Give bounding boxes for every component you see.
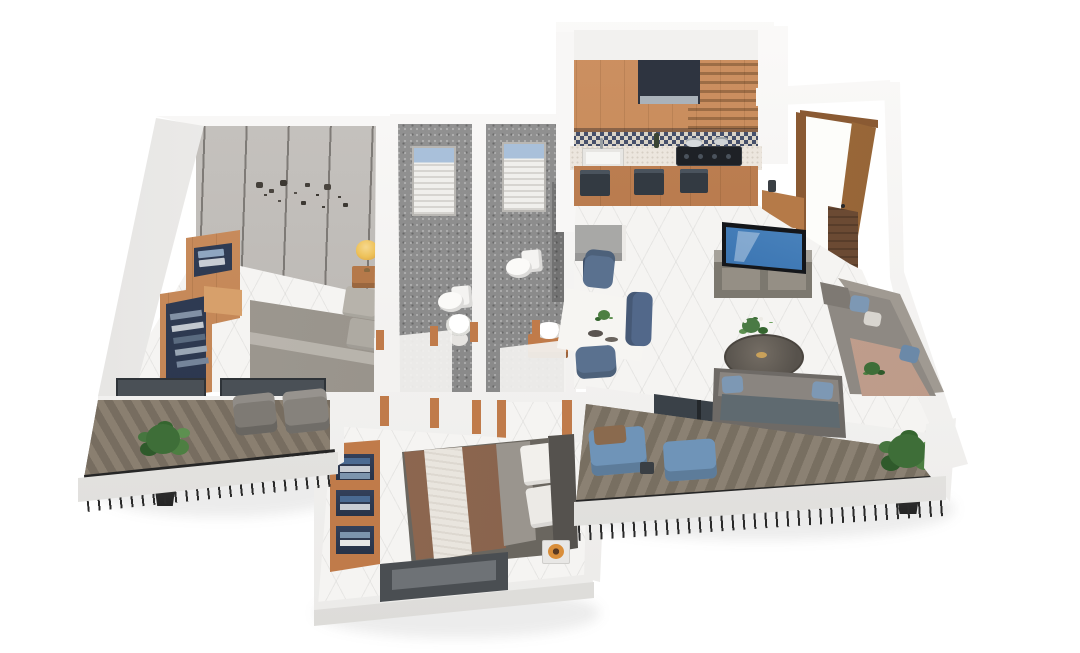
built-in-oven: [634, 169, 664, 195]
gas-hob: [676, 146, 742, 166]
bedroom2-left-wall: [0, 0, 1080, 653]
lounger-blue: [663, 438, 718, 482]
dark-wood-panel: [0, 0, 1080, 653]
bedroom2-bottom-wall: [0, 0, 1080, 653]
bed2-frame: [0, 0, 1080, 653]
shelf-cubby: [336, 526, 374, 554]
bathrooms: [0, 0, 1080, 653]
master-bed-sheet-fold: [0, 0, 1080, 653]
toilet-bowl: [438, 292, 464, 312]
living-floor: [0, 0, 1080, 653]
bed2-white-throw: [0, 0, 1080, 653]
base-cabinets: [0, 0, 1080, 653]
tucked-chair: [583, 256, 611, 284]
wall-art: [256, 182, 263, 188]
bathroom-window-blinds: [412, 146, 456, 216]
ground-shadow: [565, 478, 955, 540]
master-bedroom-top-wall: [0, 0, 1080, 653]
mosaic-backsplash: [0, 0, 1080, 653]
bedroom2-window-inner: [0, 0, 1080, 653]
bathroom-window-blinds: [502, 142, 546, 212]
open-shelf-unit: [0, 0, 1080, 653]
pillow: [342, 285, 382, 320]
wood-post: [532, 320, 540, 340]
balcony-glass-door: [0, 0, 1080, 653]
table-plant: [598, 310, 610, 320]
bathroom-right-wall: [0, 0, 1080, 653]
kitchen-top-wall: [0, 0, 1080, 653]
cooking-pot: [686, 138, 702, 147]
television-screen: [0, 0, 1080, 653]
wardrobe-upper-interior: [0, 0, 1080, 653]
kitchen-sink: [582, 148, 624, 168]
door-post: [472, 400, 481, 434]
coffee-table: [724, 334, 804, 380]
kitchen-corner-column: [0, 0, 1080, 653]
wood-post: [430, 326, 438, 346]
screen-highlight: [0, 0, 1080, 653]
two-seat-sofa-frame: [0, 0, 1080, 653]
ground-shadow: [315, 588, 600, 638]
blue-towels: [340, 458, 370, 464]
shower-screen: [0, 0, 1080, 653]
balcony-armchair: [282, 388, 330, 434]
right-outer-wall: [0, 0, 1080, 653]
hood-steel-strip: [640, 96, 698, 104]
wood-post: [376, 330, 384, 350]
pillow-white: [525, 483, 567, 528]
dining-chair: [575, 345, 617, 380]
entry-door-leaf: [0, 0, 1080, 653]
living-balcony-wall: [0, 0, 1080, 653]
master-bedroom-floor: [0, 0, 1080, 653]
bedroom-bathroom-wall: [0, 0, 1080, 653]
wardrobe-hanging-unit: [0, 0, 1080, 653]
room-kitchen: [0, 0, 1080, 653]
bathroom-divider-wall: [0, 0, 1080, 653]
bedroom2-floor: [0, 0, 1080, 653]
room-entry: [0, 0, 1080, 653]
master-bed-blanket: [0, 0, 1080, 653]
bathroom-gray-block: [0, 0, 1080, 653]
bench-lamp: [768, 180, 776, 192]
gold-bowl: [756, 352, 767, 358]
range-hood: [0, 0, 1080, 653]
window-sill-band: [0, 0, 1080, 653]
dining-chair: [582, 249, 616, 290]
balcony-armchair: [232, 392, 278, 436]
floorplan-canvas: [0, 0, 1080, 653]
upper-cabinets: [0, 0, 1080, 653]
orange-bowl: [548, 544, 564, 559]
left-balcony-end-wall: [0, 0, 1080, 653]
door-lintel: [0, 0, 1080, 653]
table-lamp: [356, 240, 378, 260]
door-post: [562, 400, 572, 444]
shoe-bench: [0, 0, 1080, 653]
tan-chaise: [0, 0, 1080, 653]
cooking-pot: [714, 137, 728, 145]
door-post: [430, 398, 439, 428]
faucet: [600, 138, 603, 149]
countertop: [0, 0, 1080, 653]
television-frame: [0, 0, 1080, 653]
shelf-cubby: [336, 454, 374, 480]
wardrobe-hanging-interior: [0, 0, 1080, 653]
entry-top-wall: [0, 0, 1080, 653]
built-in-oven: [580, 170, 610, 196]
wardrobe-upper-unit: [0, 0, 1080, 653]
potted-plant: [888, 434, 926, 468]
pillow-blue: [721, 375, 743, 393]
hob-burner: [684, 154, 689, 159]
room-bedroom-2: [0, 0, 1080, 653]
cabinet-slats: [0, 0, 1080, 653]
door-post: [497, 400, 506, 442]
potted-plant: [146, 424, 180, 454]
lounger-blue: [588, 426, 648, 477]
bathroom-top-wall: [0, 0, 1080, 653]
dining-chair: [625, 292, 653, 347]
nightstand: [352, 266, 382, 288]
folded-clothes: [198, 249, 225, 259]
toilet: [521, 249, 543, 273]
shower-screen: [0, 0, 1080, 653]
coffee-table-plant: [742, 318, 760, 333]
side-table: [542, 540, 570, 564]
toilet: [451, 285, 473, 309]
bedroom2-door-opening: [0, 0, 1080, 653]
floor-plant-small: [864, 362, 880, 375]
kitchen-wall-band: [0, 0, 1080, 653]
under-cabinet-shadow: [0, 0, 1080, 653]
room-master-bedroom: [0, 0, 1080, 653]
plant-flowers: [750, 314, 754, 318]
bedroom-window: [220, 378, 326, 398]
bedroom2-right-wall: [0, 0, 1080, 653]
bedroom2-window-frame: [0, 0, 1080, 653]
bedroom2-slab: [0, 0, 1080, 653]
pillow-blue: [849, 295, 870, 313]
ground-shadow: [95, 462, 350, 517]
toilet-bowl: [506, 258, 532, 278]
washbasin: [446, 314, 472, 336]
bathroom-shadow-band: [0, 0, 1080, 653]
balcony-main: [0, 0, 1080, 653]
sectional-sofa-back: [0, 0, 1080, 653]
main-balcony-end-wall: [0, 0, 1080, 653]
bed2-headboard: [0, 0, 1080, 653]
door-handle: [841, 204, 845, 208]
left-balcony-slab: [0, 0, 1080, 653]
sofa-armrest: [0, 0, 1080, 653]
pillow-white: [520, 442, 561, 486]
bedroom-window: [116, 378, 206, 398]
table-dish: [588, 330, 603, 337]
panel-feature-wall: [0, 0, 1080, 653]
washbasin-oval: [534, 322, 564, 339]
bed2-duvet-brown: [0, 0, 1080, 653]
pillow-gray: [863, 311, 882, 328]
pillow: [346, 317, 388, 353]
refrigerator-unit: [575, 225, 626, 261]
kitchen-floor: [0, 0, 1080, 653]
sectional-sofa-seat: [0, 0, 1080, 653]
main-balcony-slab: [0, 0, 1080, 653]
pillow-blue: [811, 381, 834, 400]
wine-bottle: [654, 133, 659, 148]
pillow-blue: [898, 344, 920, 364]
door-opening: [0, 0, 1080, 653]
master-bedroom-left-wall: [0, 0, 1080, 653]
left-balcony-deck: [0, 0, 1080, 653]
two-seat-sofa-back: [0, 0, 1080, 653]
main-balcony-deck: [0, 0, 1080, 653]
balcony-side-table: [640, 462, 654, 474]
door-frame: [0, 0, 1080, 653]
glass-mullion: [0, 0, 1080, 653]
bedroom2-top-wall: [0, 0, 1080, 653]
lounger-cushion-brown: [593, 425, 626, 446]
vanity-wood: [528, 334, 568, 358]
dresser-top: [0, 0, 1080, 653]
master-bed-headboard: [0, 0, 1080, 653]
two-seat-sofa-seat: [0, 0, 1080, 653]
hanging-clothes: [170, 310, 203, 320]
room-living-dining: [0, 0, 1080, 653]
balcony-left: [0, 0, 1080, 653]
kitchen-left-wall: [0, 0, 1080, 653]
door-post: [380, 396, 389, 426]
dining-table-marble: [0, 0, 1080, 653]
bed2-gray-blanket: [0, 0, 1080, 653]
tv-unit-top: [0, 0, 1080, 653]
built-in-appliance: [680, 169, 708, 193]
tv-unit-drawer: [722, 268, 760, 290]
wood-post: [470, 322, 478, 342]
tv-unit-front: [0, 0, 1080, 653]
